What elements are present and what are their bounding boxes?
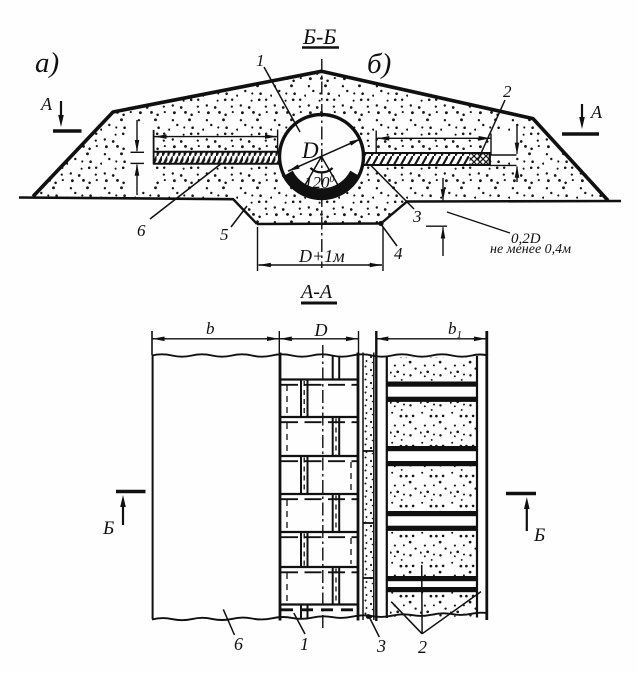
svg-text:Б: Б <box>533 525 545 546</box>
svg-text:А-А: А-А <box>299 281 333 303</box>
svg-text:b: b <box>206 319 215 338</box>
svg-text:D: D <box>314 320 328 340</box>
svg-text:2: 2 <box>418 637 427 657</box>
svg-text:D: D <box>301 138 319 163</box>
svg-text:6: 6 <box>137 221 146 240</box>
svg-text:не менее 0,4м: не менее 0,4м <box>490 242 571 257</box>
svg-text:1: 1 <box>256 51 265 70</box>
svg-text:3: 3 <box>376 636 386 656</box>
svg-text:Б-Б: Б-Б <box>302 24 336 49</box>
svg-text:6: 6 <box>234 634 243 654</box>
svg-text:А: А <box>40 94 53 114</box>
svg-text:1: 1 <box>300 634 309 654</box>
svg-text:4: 4 <box>394 244 403 263</box>
svg-text:5: 5 <box>220 225 229 244</box>
svg-text:а): а) <box>35 47 59 79</box>
svg-text:Б: Б <box>102 518 114 539</box>
svg-text:2: 2 <box>503 82 512 101</box>
svg-text:А: А <box>590 102 603 122</box>
svg-text:б): б) <box>367 48 391 80</box>
svg-text:3: 3 <box>412 207 422 226</box>
svg-text:D+1м: D+1м <box>298 246 345 266</box>
svg-text:b1: b1 <box>448 319 462 341</box>
